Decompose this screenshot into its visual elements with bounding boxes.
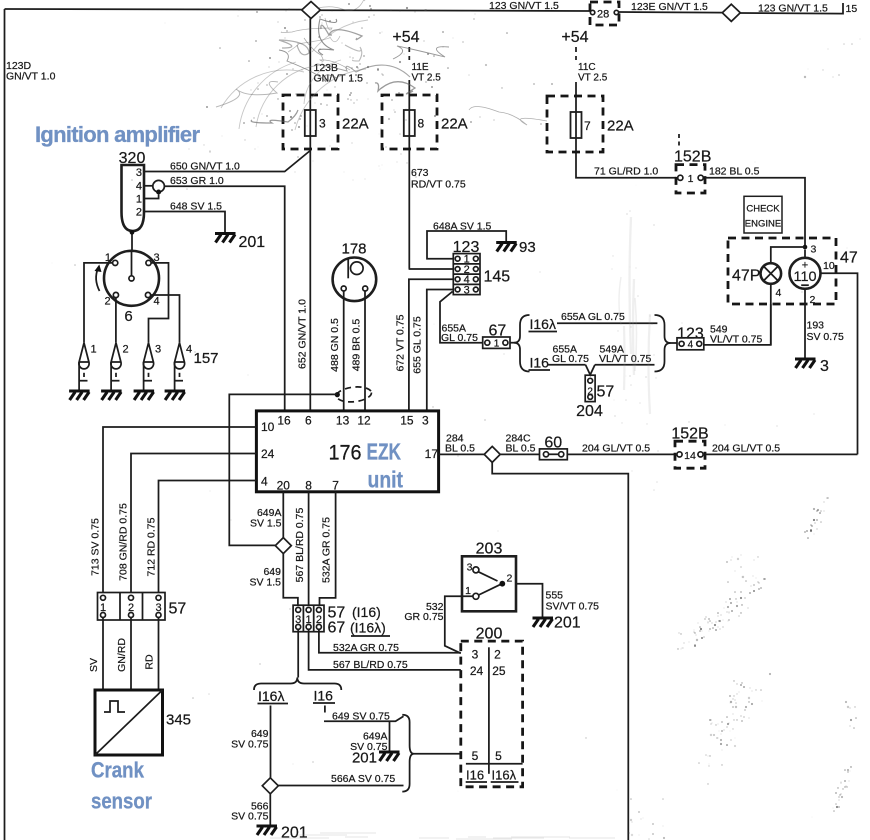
svg-text:655 GL 0.75: 655 GL 0.75	[412, 316, 424, 374]
svg-text:SV 1.5: SV 1.5	[250, 518, 282, 530]
svg-text:CHECK: CHECK	[746, 204, 780, 215]
svg-text:2: 2	[810, 294, 816, 306]
svg-text:345: 345	[166, 712, 191, 729]
svg-text:GR 0.75: GR 0.75	[404, 611, 443, 623]
svg-text:123 GN/VT 1.5: 123 GN/VT 1.5	[489, 0, 559, 12]
svg-text:SV/VT 0.75: SV/VT 0.75	[546, 601, 600, 613]
svg-text:I16λ: I16λ	[530, 316, 556, 332]
svg-text:567 BL/RD 0.75: 567 BL/RD 0.75	[294, 507, 306, 582]
svg-text:20: 20	[277, 479, 291, 493]
svg-text:11E: 11E	[412, 62, 429, 73]
svg-text:157: 157	[194, 350, 219, 367]
svg-text:ENGINE: ENGINE	[745, 219, 781, 230]
svg-text:SV 1.5: SV 1.5	[249, 577, 281, 589]
svg-text:(I16): (I16)	[352, 604, 381, 620]
svg-text:3: 3	[155, 344, 161, 356]
svg-text:SV 0.75: SV 0.75	[350, 741, 388, 753]
svg-text:8: 8	[418, 117, 425, 131]
svg-text:3: 3	[136, 167, 142, 179]
svg-text:47: 47	[840, 250, 858, 267]
svg-text:566A SV 0.75: 566A SV 0.75	[331, 773, 395, 785]
svg-text:1: 1	[688, 173, 694, 185]
svg-text:182 BL 0.5: 182 BL 0.5	[709, 166, 760, 178]
svg-text:708 GN/RD 0.75: 708 GN/RD 0.75	[118, 503, 130, 581]
svg-text:4: 4	[776, 287, 782, 299]
svg-text:652 GN/VT 1.0: 652 GN/VT 1.0	[297, 299, 309, 369]
svg-text:145: 145	[484, 269, 511, 286]
svg-text:SV: SV	[88, 658, 100, 672]
svg-text:489 BR 0.5: 489 BR 0.5	[350, 319, 362, 372]
svg-text:204 GL/VT 0.5: 204 GL/VT 0.5	[582, 443, 650, 455]
svg-text:71 GL/RD 1.0: 71 GL/RD 1.0	[594, 166, 658, 178]
svg-text:532A GR 0.75: 532A GR 0.75	[333, 642, 399, 654]
svg-text:25: 25	[492, 664, 506, 678]
svg-text:4: 4	[154, 296, 160, 308]
svg-text:3: 3	[467, 562, 473, 574]
svg-text:+54: +54	[392, 29, 419, 46]
svg-text:3: 3	[472, 648, 479, 662]
svg-text:VL/VT 0.75: VL/VT 0.75	[710, 334, 763, 346]
svg-text:2: 2	[105, 296, 111, 308]
svg-text:10: 10	[823, 260, 835, 272]
svg-text:201: 201	[554, 615, 581, 632]
svg-text:GN/RD: GN/RD	[116, 638, 128, 672]
svg-text:2: 2	[494, 648, 501, 662]
svg-text:I16: I16	[314, 688, 334, 704]
svg-text:8: 8	[305, 479, 312, 493]
svg-text:I16: I16	[466, 768, 484, 783]
svg-text:712 RD 0.75: 712 RD 0.75	[146, 517, 158, 576]
svg-text:10: 10	[261, 420, 275, 434]
svg-text:193: 193	[807, 320, 825, 332]
svg-text:110: 110	[794, 268, 817, 284]
svg-text:SV 0.75: SV 0.75	[231, 739, 269, 751]
svg-text:15: 15	[846, 3, 858, 15]
svg-text:60: 60	[544, 435, 562, 452]
svg-text:GL 0.75: GL 0.75	[441, 332, 478, 344]
svg-text:567 BL/RD 0.75: 567 BL/RD 0.75	[333, 659, 408, 671]
svg-text:648 SV 1.5: 648 SV 1.5	[170, 201, 222, 213]
svg-text:3: 3	[422, 414, 429, 428]
svg-text:653 GR 1.0: 653 GR 1.0	[170, 175, 224, 187]
svg-text:7: 7	[584, 119, 591, 133]
svg-text:28: 28	[597, 9, 609, 21]
svg-text:1: 1	[136, 194, 142, 206]
svg-text:GL 0.75: GL 0.75	[552, 353, 589, 365]
svg-text:655A GL 0.75: 655A GL 0.75	[561, 311, 625, 323]
svg-text:47P: 47P	[732, 268, 760, 285]
svg-text:2: 2	[123, 344, 129, 356]
svg-text:(I16λ): (I16λ)	[350, 620, 386, 636]
svg-text:5: 5	[495, 749, 502, 763]
svg-text:I16λ: I16λ	[258, 688, 284, 704]
svg-text:22A: 22A	[607, 118, 634, 135]
svg-text:1: 1	[91, 344, 97, 356]
svg-text:22A: 22A	[342, 116, 369, 133]
svg-text:11C: 11C	[578, 62, 596, 73]
svg-text:67: 67	[328, 620, 346, 637]
svg-text:123E GN/VT 1.5: 123E GN/VT 1.5	[631, 1, 708, 13]
svg-text:650 GN/VT 1.0: 650 GN/VT 1.0	[170, 161, 240, 173]
svg-text:3: 3	[319, 117, 326, 131]
svg-text:673: 673	[411, 167, 429, 179]
svg-text:152B: 152B	[674, 149, 711, 166]
svg-text:201: 201	[239, 234, 266, 251]
svg-text:5: 5	[472, 749, 479, 763]
svg-text:22A: 22A	[441, 116, 468, 133]
svg-text:12: 12	[357, 414, 371, 428]
svg-text:GN/VT 1.0: GN/VT 1.0	[6, 71, 56, 83]
svg-text:14: 14	[684, 450, 696, 462]
svg-text:13: 13	[336, 414, 350, 428]
svg-text:3: 3	[820, 358, 829, 375]
svg-text:4: 4	[186, 344, 192, 356]
svg-text:16: 16	[277, 414, 291, 428]
svg-text:488 GN 0.5: 488 GN 0.5	[329, 318, 341, 372]
svg-text:204: 204	[576, 403, 603, 420]
svg-text:RD/VT 0.75: RD/VT 0.75	[411, 179, 466, 191]
svg-text:176: 176	[329, 442, 362, 465]
svg-text:204 GL/VT 0.5: 204 GL/VT 0.5	[712, 443, 780, 455]
svg-text:24: 24	[261, 447, 275, 461]
svg-text:VT 2.5: VT 2.5	[578, 73, 608, 84]
svg-text:+54: +54	[561, 29, 588, 46]
svg-text:672 VT 0.75: 672 VT 0.75	[394, 314, 406, 371]
svg-text:2: 2	[136, 207, 142, 219]
svg-text:4: 4	[688, 340, 694, 351]
svg-text:BL 0.5: BL 0.5	[445, 443, 475, 455]
svg-text:EZK: EZK	[367, 439, 402, 465]
svg-text:SV 0.75: SV 0.75	[231, 811, 269, 823]
svg-text:SV 0.75: SV 0.75	[807, 331, 845, 343]
svg-text:6: 6	[305, 414, 312, 428]
svg-text:532A GR 0.75: 532A GR 0.75	[320, 517, 332, 583]
svg-text:I16: I16	[530, 355, 550, 371]
svg-text:152B: 152B	[671, 425, 708, 442]
svg-text:57: 57	[169, 601, 187, 618]
svg-text:57: 57	[597, 384, 615, 401]
svg-text:1: 1	[494, 339, 500, 350]
svg-text:RD: RD	[144, 654, 156, 670]
svg-text:3: 3	[811, 244, 817, 256]
svg-text:713 SV 0.75: 713 SV 0.75	[90, 518, 102, 576]
svg-text:7: 7	[332, 479, 339, 493]
svg-text:sensor: sensor	[91, 789, 152, 814]
svg-text:24: 24	[470, 664, 484, 678]
svg-text:4: 4	[261, 475, 268, 489]
svg-text:Ignition amplifier: Ignition amplifier	[35, 122, 200, 147]
svg-text:203: 203	[476, 541, 503, 558]
svg-text:17: 17	[425, 447, 439, 461]
svg-text:178: 178	[341, 241, 366, 258]
svg-text:123 GN/VT 1.5: 123 GN/VT 1.5	[758, 3, 828, 15]
svg-text:93: 93	[519, 239, 536, 256]
svg-text:4: 4	[136, 181, 142, 193]
svg-text:unit: unit	[368, 466, 404, 492]
svg-text:1: 1	[465, 585, 471, 597]
svg-text:2: 2	[507, 573, 513, 585]
svg-text:15: 15	[400, 414, 414, 428]
svg-text:BL 0.5: BL 0.5	[506, 443, 536, 455]
svg-text:6: 6	[124, 308, 132, 325]
svg-text:Crank: Crank	[91, 758, 145, 783]
svg-text:3: 3	[464, 285, 470, 297]
svg-text:I16λ: I16λ	[492, 768, 517, 783]
